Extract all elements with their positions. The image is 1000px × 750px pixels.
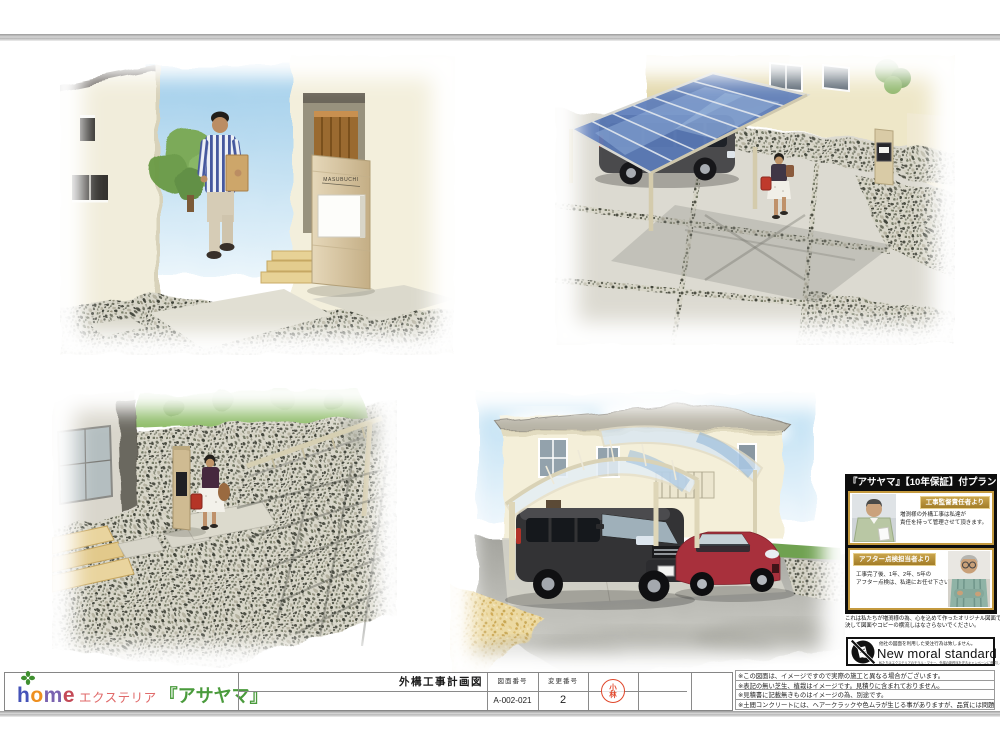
red-bag (191, 494, 202, 509)
kobayashi-stamp: 小 林 (601, 679, 625, 703)
aftercare-box: アフター点検担当者より 工事完了後、1年、2年、5年の アフター点検は、私達にお… (848, 548, 994, 610)
rendering-double-carport (450, 388, 845, 675)
rendering-side-yard (52, 388, 397, 668)
approval-stamp-cell: 小 林 (588, 673, 638, 710)
rendering-carport-aerial (555, 55, 955, 345)
gate-post (875, 129, 893, 185)
drawing-sheet: MASUBUCHI (0, 0, 1000, 750)
drawing-number-label: 図面番号 (487, 673, 538, 691)
drawing-number-value: A-002-021 (487, 691, 538, 710)
change-number-label: 変更番号 (538, 673, 588, 691)
aftercare-message-2: アフター点検は、私達にお任せ下さい。 (856, 580, 955, 587)
supervisor-photo (852, 494, 896, 542)
red-car (675, 532, 795, 602)
logo-letter-h: h (17, 684, 30, 708)
wood-post (173, 446, 190, 530)
original-note-line-2: 決して図面やコピーの横流しはなさらないでください。 (845, 623, 999, 630)
note-row: ※土間コンクリートには、ヘアークラックや色ムラが生じる事がありますが、品質には問… (735, 699, 995, 710)
gate-post: MASUBUCHI (312, 155, 370, 289)
supervisor-box: 工事監督責任者より 増渕様の外構工事は私達が 責任を持って管理させて頂きます。 (848, 491, 994, 545)
company-logo: h o m e エクステリア 『アサヤマ』 (5, 673, 238, 710)
logo-letter-e: e (63, 684, 75, 708)
original-drawing-note: これは私たちが増渕様の為、心を込めて作ったオリジナル図面です。 決して図面やコピ… (845, 616, 999, 629)
change-number-value: 2 (538, 691, 588, 710)
aftercare-label: アフター点検担当者より (853, 553, 936, 566)
supervisor-label: 工事監督責任者より (920, 496, 990, 509)
no-copy-icon (850, 639, 876, 665)
nameplate: MASUBUCHI (323, 177, 358, 183)
moral-subtext: 私たちはエクステリアのモラル・マナー、外構の新秩序を守るキャンペーンに賛同してい… (879, 660, 1000, 665)
moral-standard-box: 他社の図面を利用した受注行為は致しません。 New moral standard… (846, 637, 995, 666)
title-block: h o m e エクステリア 『アサヤマ』 外構工事計画図 図面番号 A-002… (4, 672, 733, 711)
warranty-title: 『アサヤマ』【10年保証】付プラン (848, 474, 994, 491)
aftercare-message-1: 工事完了後、1年、2年、5年の (856, 572, 931, 579)
rendering-entrance-perspective: MASUBUCHI (60, 55, 455, 355)
logo-letter-m: m (44, 684, 63, 708)
aftercare-photo (948, 551, 990, 607)
bottom-rule (0, 711, 1000, 717)
notes-table: ※この図面は、イメージですので実際の施工と異なる場合がございます。 ※表記の無い… (735, 671, 995, 710)
mailbox (318, 195, 365, 237)
drawing-title: 外構工事計画図 (238, 673, 483, 691)
supervisor-message-2: 責任を持って管理させて頂きます。 (900, 520, 987, 527)
top-rule (0, 34, 1000, 41)
red-bag (761, 177, 771, 190)
logo-letter-o: o (30, 684, 43, 708)
warranty-panel: 『アサヤマ』【10年保証】付プラン 工事監督責任者より 増渕様の外構工事は私達が… (845, 474, 997, 614)
minivan-black (505, 508, 695, 610)
supervisor-message-1: 増渕様の外構工事は私達が (900, 512, 966, 519)
original-note-line-1: これは私たちが増渕様の為、心を込めて作ったオリジナル図面です。 (845, 616, 999, 623)
logo-suffix: エクステリア (79, 687, 157, 706)
moral-brand: New moral standard (877, 646, 997, 661)
